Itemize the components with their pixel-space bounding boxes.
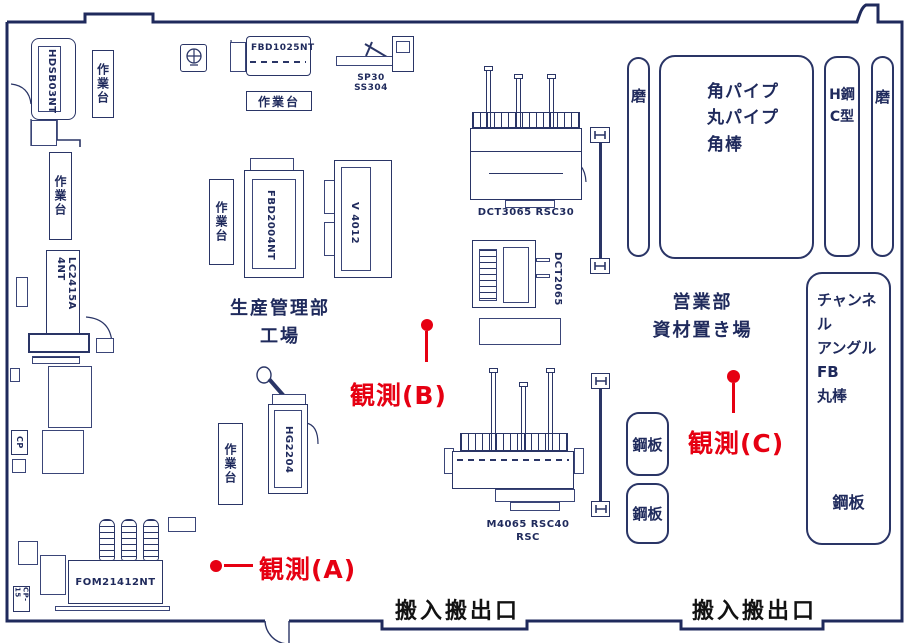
storage-channel-line2: アングル <box>817 336 889 360</box>
machine-fbd1025nt: FBD1025NT <box>246 36 311 76</box>
machine-label-sp30: SP30 SS304 <box>340 73 402 93</box>
machine-detail <box>121 519 137 561</box>
machine-detail <box>55 606 170 611</box>
machine-detail <box>18 541 38 565</box>
machine-fom21412nt: FOM21412NT <box>68 560 163 604</box>
wall-fixture <box>16 277 28 307</box>
machine-detail <box>250 61 306 63</box>
machine-label-hdsb03nt: HDSB03NT <box>46 49 57 114</box>
storage-h-steel-line2: C型 <box>826 106 858 128</box>
machine-detail <box>96 338 114 353</box>
wall-fixture <box>10 368 20 382</box>
storage-channel-steel-plate-label: 鋼板 <box>808 489 889 513</box>
storage-steel-plate-label: 鋼板 <box>632 434 662 455</box>
factory-floor-plan: HDSB03NT 作業台 FBD1025NT 作業台 SP30 SS304 作業… <box>0 0 909 643</box>
storage-polish-left: 磨 <box>627 57 650 257</box>
area-title-sales-line2: 資材置き場 <box>635 317 770 345</box>
area-title-sales: 営業部 資材置き場 <box>635 289 770 345</box>
machine-label-fom21412nt: FOM21412NT <box>69 561 162 603</box>
entrance-label-2: 搬入搬出口 <box>687 593 822 625</box>
machine-detail <box>472 112 580 128</box>
machine-label-dct3065: DCT3065 RSC30 <box>468 207 584 218</box>
i-beam-icon <box>590 127 610 143</box>
storage-steel-plate-1: 鋼板 <box>626 412 669 476</box>
machine-label-lc2415a: LC2415A 4NT <box>55 257 77 331</box>
storage-pipes: 角パイプ 丸パイプ 角棒 <box>659 55 814 259</box>
marker-cp: CP <box>11 430 28 455</box>
i-beam-icon <box>591 501 610 517</box>
storage-polish-right-label: 磨 <box>873 86 892 107</box>
machine-detail <box>31 120 57 146</box>
storage-channel: チャンネル アングル FB 丸棒 鋼板 <box>806 272 891 545</box>
rail-1 <box>599 140 602 262</box>
machine-dct2065 <box>472 240 536 308</box>
storage-channel-line3: FB <box>817 360 889 384</box>
area-title-production: 生産管理部 工場 <box>210 295 350 351</box>
worktable-label: 作業台 <box>52 175 69 217</box>
machine-detail <box>479 249 497 301</box>
machine-detail <box>460 433 568 451</box>
worktable-5: 作業台 <box>218 423 243 505</box>
worktable-label: 作業台 <box>258 93 300 110</box>
machine-detail <box>230 42 246 72</box>
machine-label-hg2204: HG2204 <box>283 417 294 483</box>
observation-b-stem <box>425 331 428 362</box>
machine-detail <box>143 519 159 561</box>
machine-label-dct2065: DCT2065 <box>552 252 563 306</box>
machine-label-v4012: V 4012 <box>349 181 360 265</box>
worktable-2: 作業台 <box>246 91 312 111</box>
machine-detail <box>99 519 115 561</box>
worktable-4: 作業台 <box>209 179 234 265</box>
machine-detail <box>495 489 575 502</box>
machine-detail <box>42 430 84 474</box>
machine-m4065 <box>452 451 574 489</box>
machine-detail <box>32 356 80 364</box>
storage-steel-plate-2: 鋼板 <box>626 483 669 544</box>
observation-b-pin <box>421 319 433 331</box>
machine-detail <box>28 333 90 353</box>
storage-polish-right: 磨 <box>871 56 894 257</box>
machine-detail <box>489 173 563 174</box>
machine-detail <box>457 459 569 461</box>
worktable-label: 作業台 <box>213 201 230 243</box>
observation-a-stem <box>224 564 253 567</box>
machine-detail <box>40 555 66 595</box>
machine-v4012: V 4012 <box>334 160 392 278</box>
machine-label-m4065-line2: RSC <box>466 531 590 544</box>
observation-c-pin <box>727 370 740 383</box>
machine-detail <box>396 41 410 53</box>
i-beam-icon <box>591 373 610 389</box>
marker-cp-label: CP <box>15 436 24 449</box>
machine-label-fbd2004nt: FBD2004NT <box>265 185 276 265</box>
machine-detail <box>510 502 560 511</box>
machine-dct3065 <box>470 128 582 200</box>
machine-detail <box>574 448 584 474</box>
machine-detail <box>168 517 196 532</box>
machine-hdsb03nt: HDSB03NT <box>31 38 76 120</box>
machine-detail <box>536 258 550 262</box>
machine-detail <box>336 56 398 66</box>
storage-h-steel: H鋼 C型 <box>824 56 860 257</box>
marker-cp15: CP-15 <box>13 586 30 612</box>
worktable-label: 作業台 <box>222 443 239 485</box>
storage-channel-line4: 丸棒 <box>817 384 889 408</box>
drill-press-icon <box>180 44 207 72</box>
pallet-area <box>479 318 561 345</box>
wall-fixture <box>12 459 26 473</box>
storage-pipes-line2: 丸パイプ <box>707 105 812 131</box>
worktable-1: 作業台 <box>92 50 114 118</box>
storage-steel-plate-label: 鋼板 <box>632 503 662 524</box>
area-title-production-line2: 工場 <box>210 323 350 351</box>
machine-label-fbd1025nt: FBD1025NT <box>251 43 315 53</box>
observation-c-label: 観測(C) <box>688 424 784 460</box>
machine-detail <box>536 274 550 278</box>
area-title-production-line1: 生産管理部 <box>210 295 350 323</box>
storage-pipes-line3: 角棒 <box>707 132 812 158</box>
machine-fbd2004nt: FBD2004NT <box>244 170 304 278</box>
rail-2 <box>599 388 602 506</box>
worktable-3: 作業台 <box>49 152 72 240</box>
machine-lc2415a: LC2415A 4NT <box>46 250 80 335</box>
entrance-label-1: 搬入搬出口 <box>390 593 525 625</box>
storage-pipes-line1: 角パイプ <box>707 79 812 105</box>
machine-detail <box>471 151 581 152</box>
observation-b-label: 観測(B) <box>350 376 447 412</box>
machine-detail <box>503 247 529 303</box>
machine-hg2204: HG2204 <box>268 404 308 494</box>
storage-channel-line1: チャンネル <box>817 288 889 336</box>
storage-h-steel-line1: H鋼 <box>826 84 858 106</box>
marker-cp15-label: CP-15 <box>14 587 30 611</box>
observation-c-stem <box>732 383 735 413</box>
machine-sp30 <box>392 36 414 72</box>
worktable-label: 作業台 <box>95 63 112 105</box>
machine-detail <box>48 366 92 428</box>
i-beam-icon <box>590 258 610 274</box>
machine-label-m4065: M4065 RSC40 RSC <box>466 518 590 544</box>
storage-polish-left-label: 磨 <box>629 85 648 106</box>
observation-a-label: 観測(A) <box>259 550 356 586</box>
area-title-sales-line1: 営業部 <box>635 289 770 317</box>
machine-label-m4065-line1: M4065 RSC40 <box>466 518 590 531</box>
observation-a-pin <box>210 560 222 572</box>
